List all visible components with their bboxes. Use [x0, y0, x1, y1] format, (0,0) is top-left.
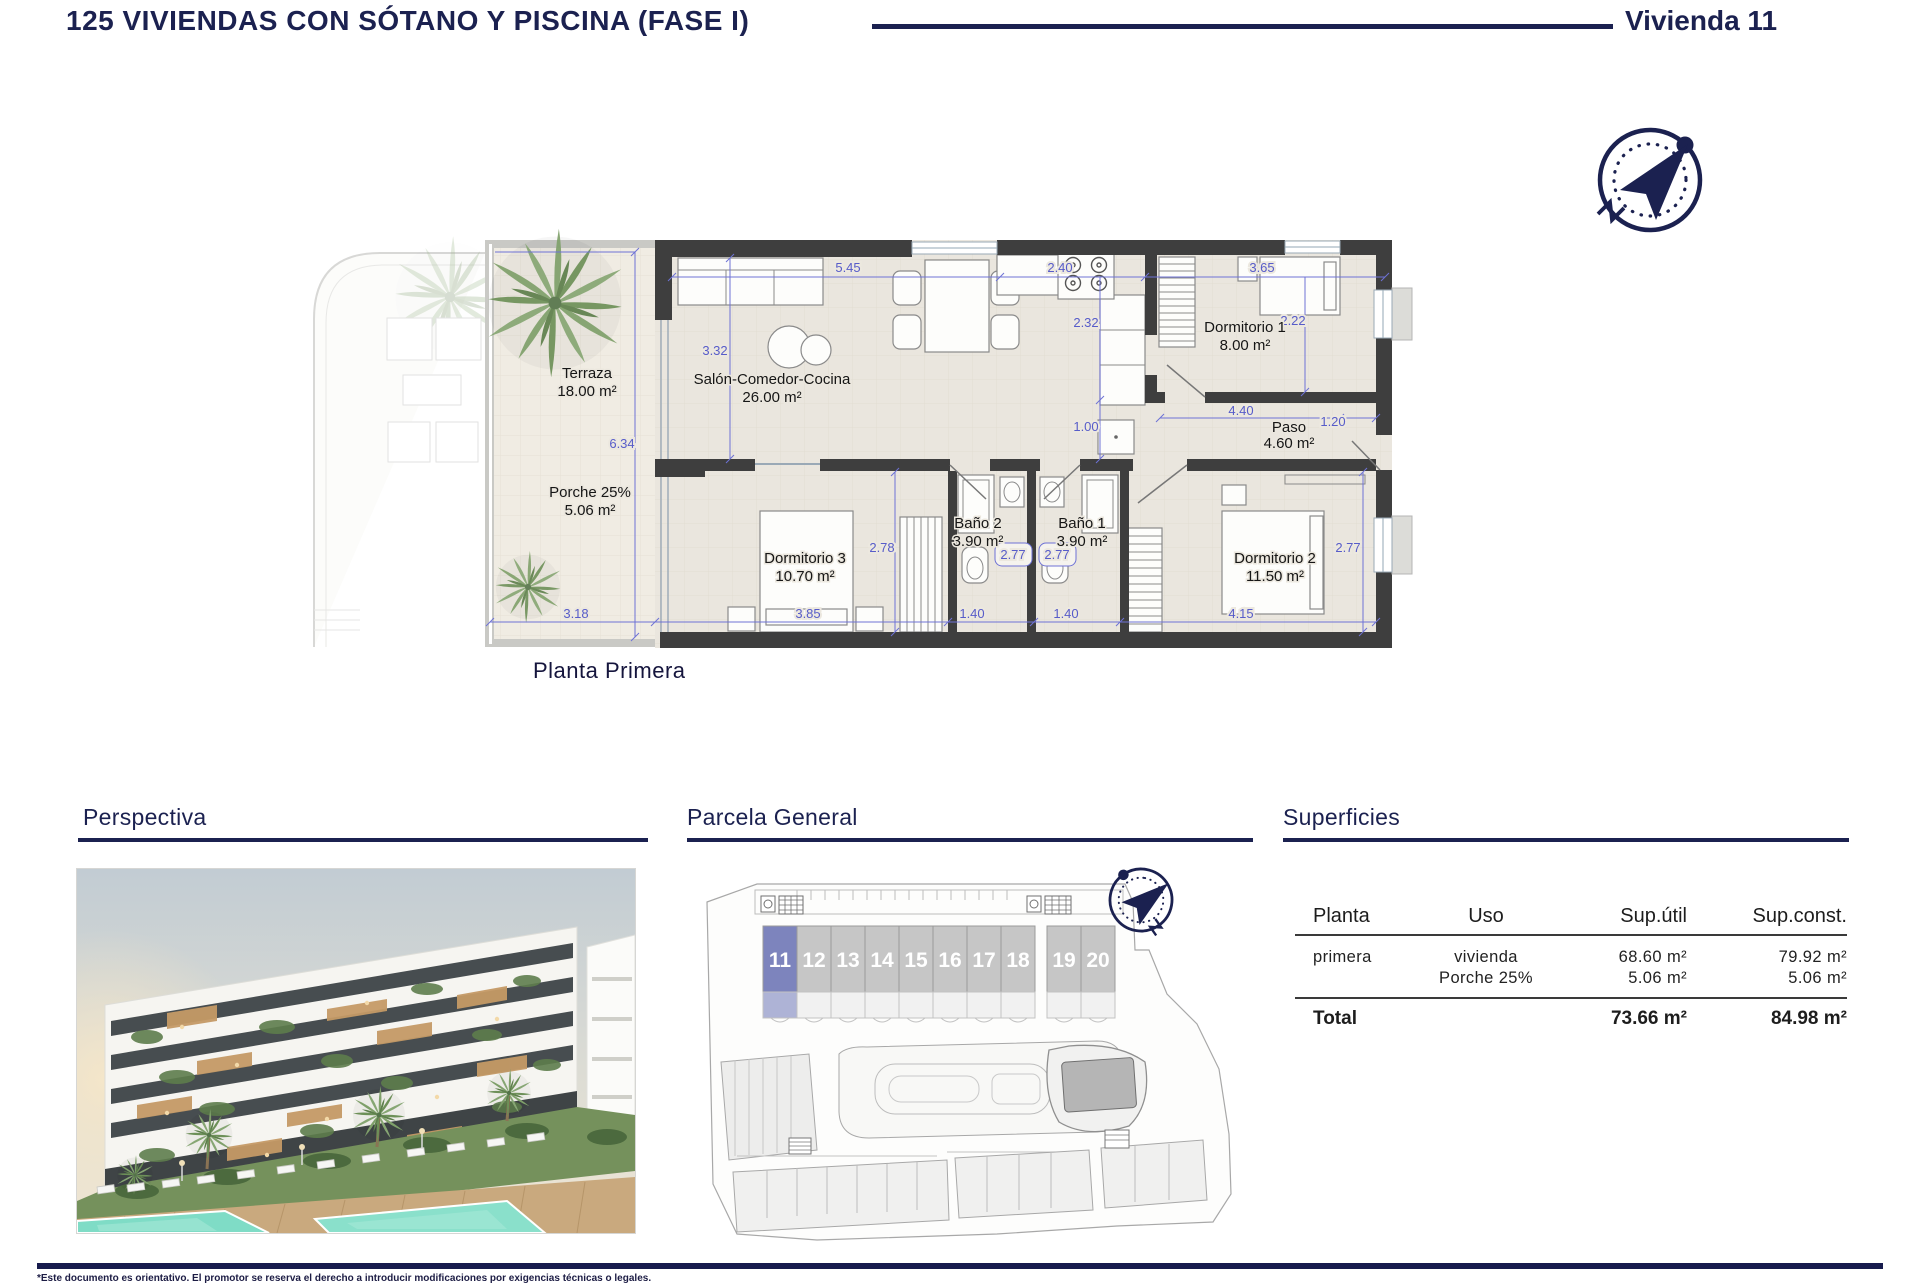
room-label-porche: Porche 25%: [549, 484, 631, 501]
room-label-dorm1: Dormitorio 1: [1204, 319, 1286, 336]
floor-plan: 5.45 2.40 3.65 2.32 2.22 3.32 6.34 1.00 …: [300, 235, 1405, 655]
room-area-bano2: 3.90 m²: [953, 533, 1004, 550]
superficies-rule: [1283, 838, 1849, 842]
table-row: Porche 25% 5.06 m² 5.06 m²: [1295, 968, 1847, 1000]
dorm3-furniture: [728, 511, 942, 632]
perspectiva-rule: [78, 838, 648, 842]
dim-label: 2.77: [1335, 540, 1360, 555]
unit-number: 13: [836, 949, 859, 972]
cell-util: 5.06 m²: [1562, 968, 1687, 989]
cell-total-const: 84.98 m²: [1687, 1008, 1847, 1030]
room-area-bano1: 3.90 m²: [1057, 533, 1108, 550]
unit-number: 19: [1052, 949, 1075, 972]
dim-label: 2.32: [1073, 315, 1098, 330]
dim-label: 4.15: [1228, 606, 1253, 621]
unit-numbers: 11 12 13 14 15 16 17 18 19 20: [769, 949, 1110, 972]
cell-uso: vivienda: [1410, 947, 1562, 968]
perspective-render: [76, 868, 636, 1234]
room-label-salon: Salón-Comedor-Cocina: [694, 371, 851, 388]
room-label-dorm2: Dormitorio 2: [1234, 550, 1316, 567]
table-total-row: Total 73.66 m² 84.98 m²: [1295, 999, 1847, 1030]
cell-util: 68.60 m²: [1562, 947, 1687, 968]
room-area-dorm3: 10.70 m²: [775, 568, 834, 585]
room-area-terraza: 18.00 m²: [557, 383, 616, 400]
room-label-bano1: Baño 1: [1058, 515, 1106, 532]
cell-const: 5.06 m²: [1687, 968, 1847, 989]
unit-number: 15: [904, 949, 928, 972]
dim-label: 4.40: [1228, 403, 1253, 418]
dim-label: 3.32: [702, 343, 727, 358]
room-area-dorm1: 8.00 m²: [1220, 337, 1271, 354]
unit-number: 17: [972, 949, 995, 972]
unit-number: 18: [1006, 949, 1030, 972]
table-header-row: Planta Uso Sup.útil Sup.const.: [1295, 905, 1847, 936]
room-label-dorm3: Dormitorio 3: [764, 550, 846, 567]
dim-label: 1.40: [959, 606, 984, 621]
header-rule: [872, 24, 1613, 29]
cell-total-util: 73.66 m²: [1562, 1008, 1687, 1030]
dim-label: 3.65: [1249, 260, 1274, 275]
col-header-planta: Planta: [1295, 905, 1410, 928]
dim-label: 5.45: [835, 260, 860, 275]
dim-label: 2.77: [1000, 547, 1025, 562]
room-label-bano2: Baño 2: [954, 515, 1002, 532]
dim-label: 6.34: [609, 436, 634, 451]
room-area-porche: 5.06 m²: [565, 502, 616, 519]
unit-number: 11: [769, 949, 792, 972]
room-label-terraza: Terraza: [562, 365, 613, 382]
north-compass-icon: [1583, 113, 1717, 247]
unit-number: 20: [1086, 949, 1109, 972]
cell-total-label: Total: [1295, 1008, 1410, 1030]
parcela-title: Parcela General: [687, 804, 858, 831]
superficies-title: Superficies: [1283, 804, 1400, 831]
unit-number: 16: [938, 949, 961, 972]
col-header-uso: Uso: [1410, 905, 1562, 928]
sofa: [678, 258, 823, 305]
unit-number: 12: [802, 949, 825, 972]
footer-disclaimer: *Este documento es orientativo. El promo…: [37, 1273, 651, 1284]
dim-label: 1.40: [1053, 606, 1078, 621]
neighbour-unit-ghost: [314, 236, 505, 647]
col-header-sup-util: Sup.útil: [1562, 905, 1687, 928]
superficies-table: Planta Uso Sup.útil Sup.const. primera v…: [1295, 905, 1847, 1030]
dim-label: 1.00: [1073, 419, 1098, 434]
vivienda-label: Vivienda 11: [1625, 5, 1777, 37]
room-label-paso: Paso: [1272, 419, 1306, 436]
page-title: 125 VIVIENDAS CON SÓTANO Y PISCINA (FASE…: [66, 5, 749, 37]
dim-label: 2.40: [1047, 260, 1072, 275]
site-plan: 11 12 13 14 15 16 17 18 19 20: [697, 854, 1242, 1254]
dim-label: 1.20: [1320, 414, 1345, 429]
cell-const: 79.92 m²: [1687, 947, 1847, 968]
parcela-rule: [687, 838, 1253, 842]
dim-label: 2.78: [869, 540, 894, 555]
unit-number: 14: [870, 949, 894, 972]
room-area-dorm2: 11.50 m²: [1246, 568, 1304, 585]
plan-caption: Planta Primera: [533, 658, 686, 684]
table-row: primera vivienda 68.60 m² 79.92 m²: [1295, 936, 1847, 968]
dim-label: 3.85: [795, 606, 820, 621]
cell-uso: Porche 25%: [1410, 968, 1562, 989]
perspectiva-title: Perspectiva: [83, 804, 206, 831]
room-area-paso: 4.60 m²: [1264, 435, 1315, 452]
footer-rule: [37, 1263, 1883, 1269]
room-area-salon: 26.00 m²: [742, 389, 801, 406]
dim-label: 3.18: [563, 606, 588, 621]
col-header-sup-const: Sup.const.: [1687, 905, 1847, 928]
cell-planta: primera: [1295, 947, 1410, 968]
